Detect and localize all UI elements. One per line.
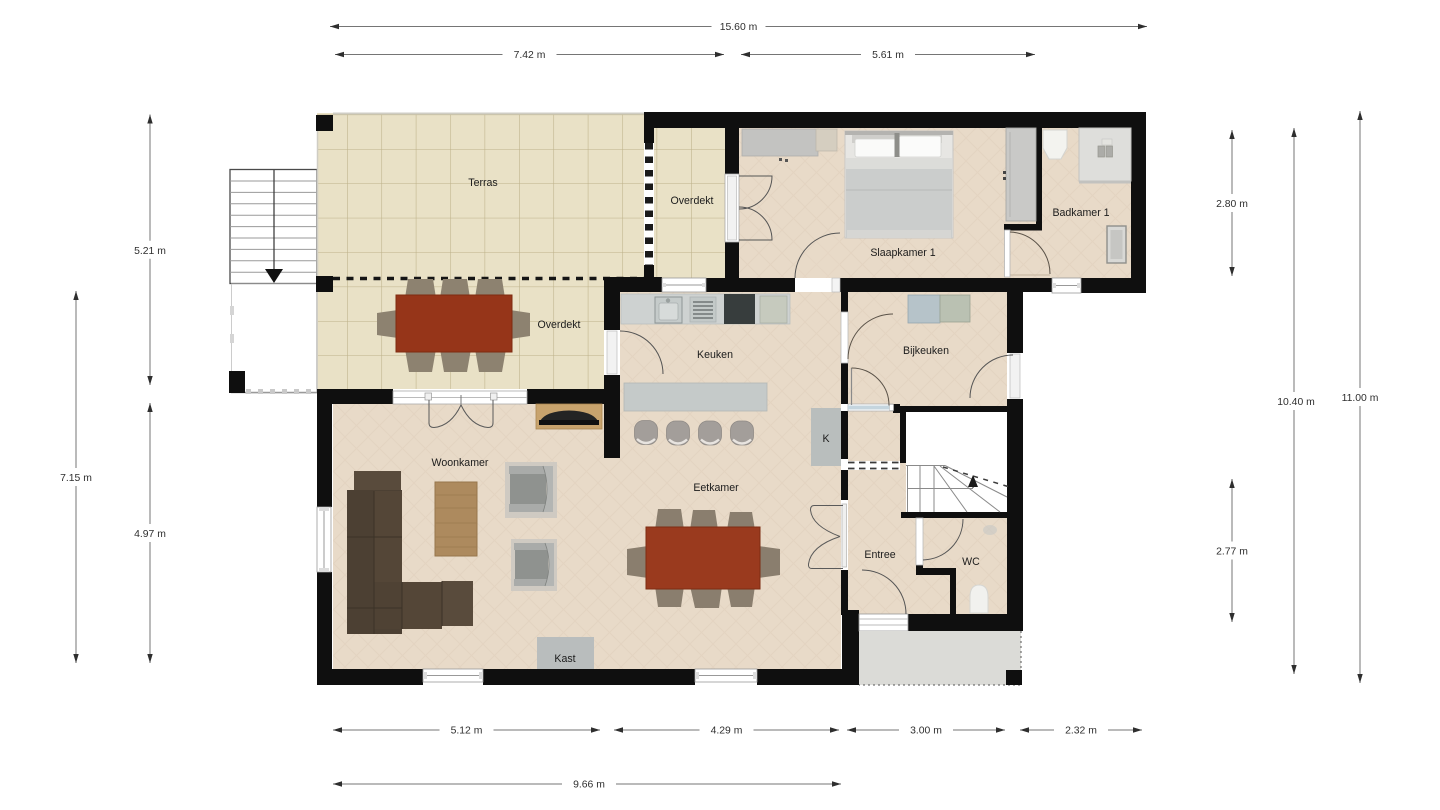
- svg-text:Bijkeuken: Bijkeuken: [903, 345, 949, 357]
- svg-text:Badkamer 1: Badkamer 1: [1052, 207, 1109, 219]
- svg-text:2.32 m: 2.32 m: [1065, 726, 1097, 737]
- svg-text:3.00 m: 3.00 m: [910, 726, 942, 737]
- svg-text:Overdekt: Overdekt: [671, 195, 714, 207]
- svg-text:5.61 m: 5.61 m: [872, 50, 904, 61]
- svg-text:15.60 m: 15.60 m: [720, 22, 758, 33]
- svg-text:7.42 m: 7.42 m: [514, 50, 546, 61]
- svg-text:4.29 m: 4.29 m: [711, 726, 743, 737]
- svg-text:Overdekt: Overdekt: [538, 319, 581, 331]
- svg-text:Terras: Terras: [468, 177, 497, 189]
- svg-text:2.80 m: 2.80 m: [1216, 199, 1248, 210]
- svg-text:Woonkamer: Woonkamer: [432, 457, 489, 469]
- svg-text:Eetkamer: Eetkamer: [693, 482, 739, 494]
- svg-text:5.21 m: 5.21 m: [134, 246, 166, 257]
- svg-text:7.15 m: 7.15 m: [60, 473, 92, 484]
- svg-text:4.97 m: 4.97 m: [134, 529, 166, 540]
- svg-text:K: K: [822, 433, 829, 445]
- svg-text:Entree: Entree: [864, 549, 895, 561]
- svg-text:WC: WC: [962, 556, 980, 568]
- svg-text:10.40 m: 10.40 m: [1277, 397, 1315, 408]
- svg-text:9.66 m: 9.66 m: [573, 780, 605, 791]
- svg-text:Kast: Kast: [554, 653, 575, 665]
- svg-text:11.00 m: 11.00 m: [1342, 393, 1379, 404]
- svg-text:2.77 m: 2.77 m: [1216, 547, 1248, 558]
- svg-text:5.12 m: 5.12 m: [451, 726, 483, 737]
- svg-text:Keuken: Keuken: [697, 349, 733, 361]
- svg-text:Slaapkamer 1: Slaapkamer 1: [870, 247, 935, 259]
